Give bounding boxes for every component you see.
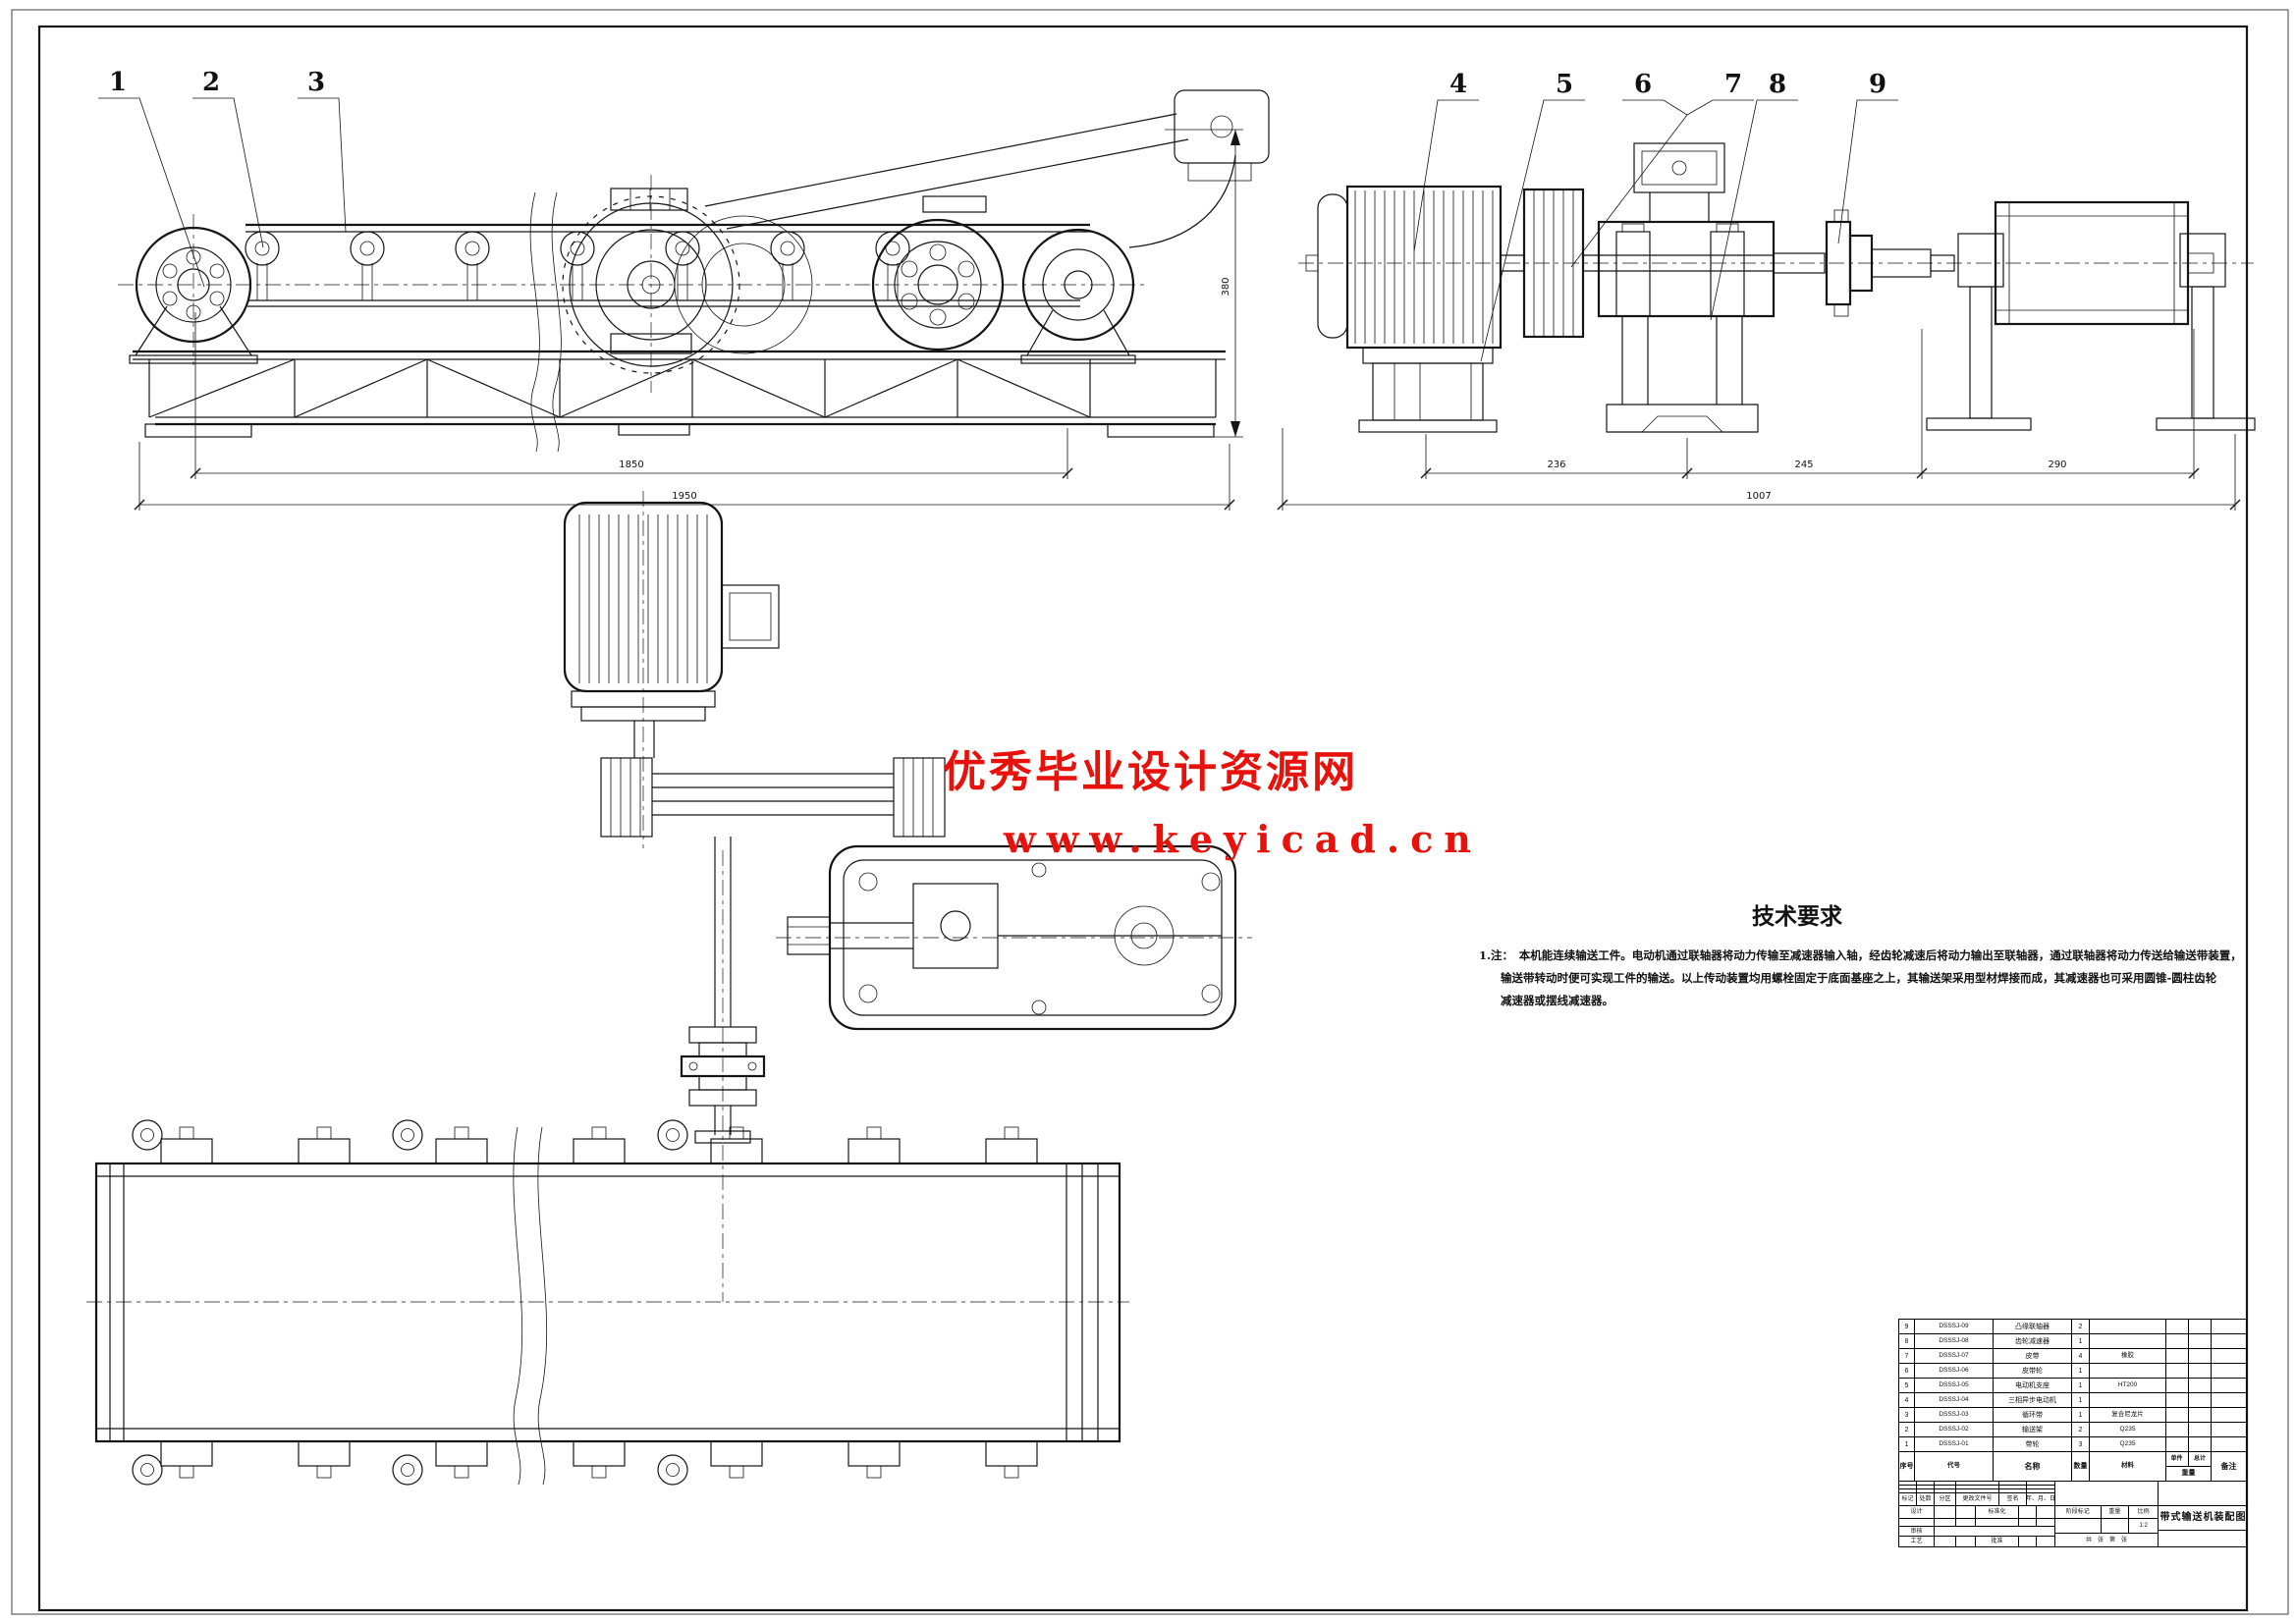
tech-note-line1: 1.注： 本机能连续输送工件。电动机通过联轴器将动力传输至减速器输入轴，经齿轮减… xyxy=(1479,945,2245,967)
dim-right-total: 1007 xyxy=(1746,491,1771,502)
lifting-lugs xyxy=(133,1120,687,1485)
motor-plan xyxy=(565,503,779,758)
scale-value: 1:2 xyxy=(2129,1519,2158,1533)
callout-8: 8 xyxy=(1769,70,1786,99)
idler-brackets-bottom xyxy=(161,1441,1037,1478)
tech-note-line2: 输送带转动时便可实现工件的输送。以上传动装置均用螺栓固定于底面基座之上，其输送架… xyxy=(1479,967,2245,990)
drive-train-view xyxy=(1298,143,2255,432)
title-block-lower: 标记 处数 分区 更改文件号 签名 年、月、日 设计 标准化 审核 工艺 xyxy=(1899,1482,2246,1546)
dim-left-inner: 1850 xyxy=(619,460,643,470)
dimension-annotations: 1850 1950 380 236 245 290 1007 xyxy=(135,130,2240,511)
callout-2: 2 xyxy=(202,68,220,97)
head-pulleys xyxy=(873,220,1135,363)
part-callouts: 1 2 3 4 5 6 7 8 9 xyxy=(98,68,1898,361)
callout-9: 9 xyxy=(1869,70,1886,99)
parts-row-6: 6DSSSJ-06皮带轮1 xyxy=(1899,1364,2246,1379)
stage-scale-block: 阶段标记 重量 比例 1:2 共 张 第 张 xyxy=(2054,1482,2158,1546)
weight-header-group: 单件总计 重量 xyxy=(2166,1452,2212,1481)
parts-row-9: 9DSSSJ-09凸缘联轴器2 xyxy=(1899,1320,2246,1334)
gear-reducer-stand xyxy=(1599,143,1774,432)
sheet-count: 共 张 第 张 xyxy=(2055,1534,2158,1546)
motor-elevation xyxy=(1306,187,1524,432)
belt-drum xyxy=(1927,202,2255,430)
tech-note-prefix: 1.注： xyxy=(1479,948,1507,962)
dim-left-height: 380 xyxy=(1221,277,1231,296)
parts-list-table: 9DSSSJ-09凸缘联轴器2 8DSSSJ-08齿轮减速器1 7DSSSJ-0… xyxy=(1899,1320,2246,1482)
drawing-title-block: 带式输送机装配图 xyxy=(2158,1482,2248,1546)
watermark-site-url: www.keyicad.cn xyxy=(1004,817,1482,861)
callout-3: 3 xyxy=(307,68,325,97)
truss-frame xyxy=(133,352,1226,437)
watermark-site-name: 优秀毕业设计资源网 xyxy=(943,736,1358,799)
signature-block: 标记 处数 分区 更改文件号 签名 年、月、日 设计 标准化 审核 工艺 xyxy=(1899,1482,2054,1546)
tech-requirements-notes: 1.注： 本机能连续输送工件。电动机通过联轴器将动力传输至减速器输入轴，经齿轮减… xyxy=(1479,945,2245,1012)
dim-right-seg1: 236 xyxy=(1547,460,1565,470)
parts-row-5: 5DSSSJ-05电动机支座1HT200 xyxy=(1899,1379,2246,1393)
parts-row-2: 2DSSSJ-02输送架2Q235 xyxy=(1899,1423,2246,1437)
dim-right-seg2: 245 xyxy=(1794,460,1813,470)
callout-5: 5 xyxy=(1556,70,1573,99)
parts-row-4: 4DSSSJ-04三相异步电动机1 xyxy=(1899,1393,2246,1408)
idler-brackets-top xyxy=(161,1127,1037,1163)
parts-row-3: 3DSSSJ-03循环带1复合尼龙片 xyxy=(1899,1408,2246,1423)
callout-6: 6 xyxy=(1634,70,1652,99)
parts-row-8: 8DSSSJ-08齿轮减速器1 xyxy=(1899,1334,2246,1349)
parts-row-1: 1DSSSJ-01带轮3Q235 xyxy=(1899,1437,2246,1452)
title-block: 9DSSSJ-09凸缘联轴器2 8DSSSJ-08齿轮减速器1 7DSSSJ-0… xyxy=(1898,1319,2247,1547)
callout-4: 4 xyxy=(1449,70,1467,99)
conveyor-side-view xyxy=(118,90,1269,452)
parts-row-7: 7DSSSJ-07皮带4橡胶 xyxy=(1899,1349,2246,1364)
dim-left-outer: 1950 xyxy=(672,491,696,502)
tech-note-line3: 减速器或摆线减速器。 xyxy=(1479,990,2245,1012)
callout-1: 1 xyxy=(109,68,127,97)
tech-requirements-title: 技术要求 xyxy=(1660,897,1935,931)
callout-7: 7 xyxy=(1724,70,1742,99)
conveyor-plan xyxy=(86,1120,1129,1485)
engineering-drawing-sheet: 1 2 3 4 5 6 7 8 9 1850 1950 380 xyxy=(0,0,2296,1623)
vbelt-plan xyxy=(601,758,945,837)
dim-right-seg3: 290 xyxy=(2048,460,2066,470)
drawing-title: 带式输送机装配图 xyxy=(2159,1505,2248,1531)
plan-view xyxy=(86,491,1252,1485)
parts-list-header: 序号 代号 名称 数量 材料 单件总计 重量 备注 xyxy=(1899,1452,2246,1482)
